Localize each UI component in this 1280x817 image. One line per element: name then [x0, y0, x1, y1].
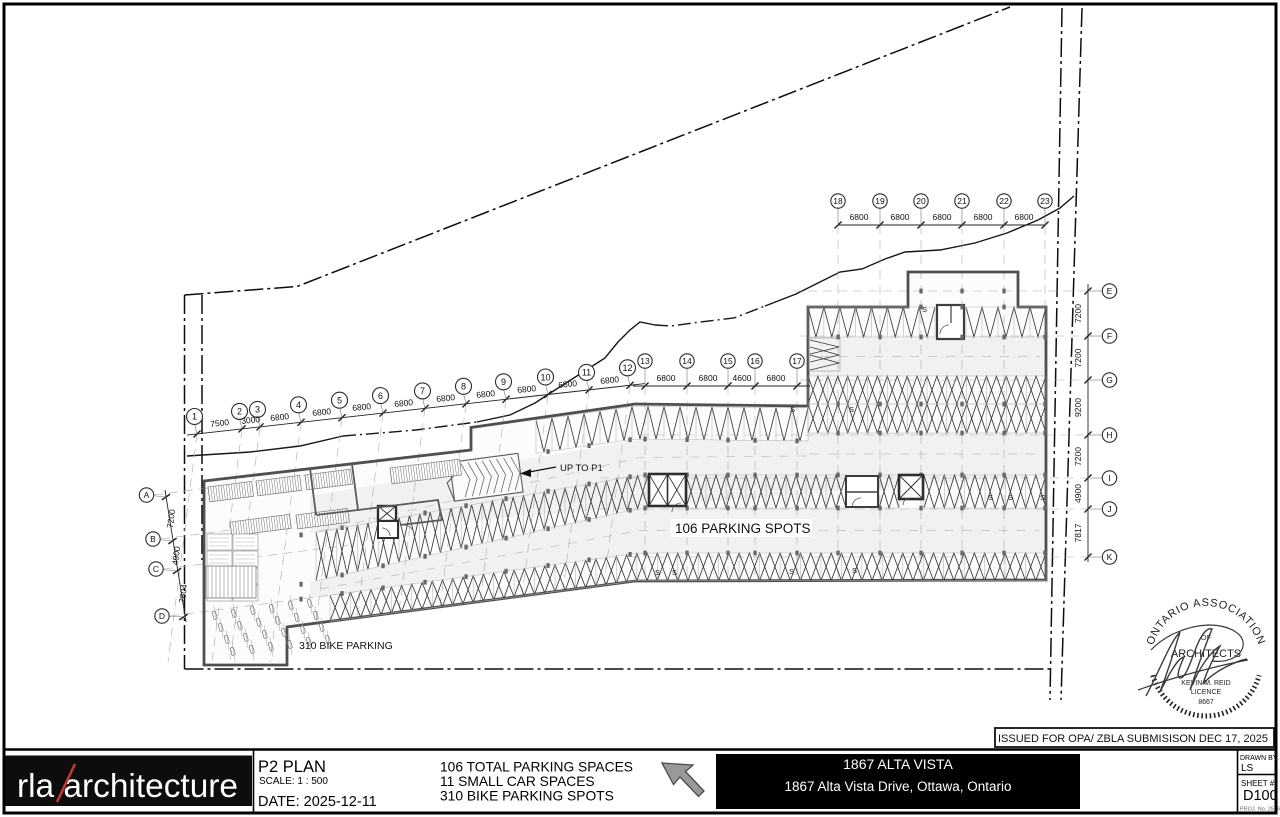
svg-text:6800: 6800: [657, 373, 676, 383]
svg-text:7200: 7200: [1073, 447, 1083, 466]
svg-text:6800: 6800: [312, 406, 332, 418]
svg-text:7500: 7500: [210, 417, 230, 429]
svg-text:6800: 6800: [1015, 212, 1034, 222]
svg-text:6800: 6800: [974, 212, 993, 222]
svg-text:SHEET #: SHEET #: [1241, 779, 1275, 788]
svg-text:4600: 4600: [733, 373, 752, 383]
svg-text:6800: 6800: [600, 374, 620, 386]
svg-text:1867 ALTA VISTA: 1867 ALTA VISTA: [843, 756, 953, 772]
svg-text:11: 11: [582, 368, 591, 378]
svg-text:21: 21: [957, 196, 967, 206]
svg-text:H: H: [1106, 430, 1112, 440]
svg-text:8: 8: [461, 382, 466, 392]
svg-text:7200: 7200: [1073, 304, 1083, 323]
svg-text:S: S: [852, 566, 857, 575]
svg-text:106 TOTAL PARKING SPACES: 106 TOTAL PARKING SPACES: [440, 760, 633, 775]
svg-text:22: 22: [999, 196, 1009, 206]
svg-text:7817: 7817: [1073, 523, 1083, 542]
svg-text:12: 12: [622, 363, 632, 373]
svg-text:rla architecture: rla architecture: [17, 767, 238, 804]
svg-text:DRAWN BY: DRAWN BY: [1240, 755, 1278, 762]
svg-text:6800: 6800: [394, 397, 414, 409]
svg-text:6800: 6800: [767, 373, 786, 383]
svg-text:J: J: [1107, 504, 1111, 514]
svg-text:6: 6: [378, 391, 383, 401]
svg-text:6800: 6800: [476, 388, 496, 400]
svg-text:S: S: [790, 405, 795, 414]
svg-text:9200: 9200: [1073, 398, 1083, 417]
svg-text:18: 18: [833, 196, 843, 206]
svg-text:F: F: [1107, 331, 1112, 341]
svg-text:UP TO P1: UP TO P1: [560, 463, 603, 474]
svg-text:3000: 3000: [241, 414, 261, 426]
svg-text:S: S: [655, 568, 660, 577]
svg-text:D: D: [159, 611, 165, 621]
svg-text:6800: 6800: [270, 411, 290, 423]
svg-text:LS: LS: [1241, 763, 1254, 774]
svg-text:6800: 6800: [352, 401, 372, 413]
svg-text:13: 13: [640, 356, 650, 366]
svg-text:S: S: [1040, 493, 1045, 502]
svg-text:S: S: [922, 305, 927, 314]
svg-text:S: S: [988, 493, 993, 502]
svg-text:E: E: [1107, 286, 1113, 296]
svg-text:4900: 4900: [1073, 484, 1083, 503]
svg-text:S: S: [789, 567, 794, 576]
svg-text:DATE: 2025-12-11: DATE: 2025-12-11: [258, 794, 377, 810]
svg-text:19: 19: [875, 196, 885, 206]
svg-text:1867 Alta Vista Drive, Ottawa,: 1867 Alta Vista Drive, Ottawa, Ontario: [784, 779, 1011, 794]
svg-text:6800: 6800: [850, 212, 869, 222]
svg-text:6800: 6800: [517, 383, 537, 395]
svg-text:11 SMALL CAR SPACES: 11 SMALL CAR SPACES: [440, 774, 595, 789]
svg-text:G: G: [1106, 375, 1113, 385]
svg-text:D100: D100: [1243, 788, 1278, 804]
svg-text:10: 10: [540, 372, 550, 382]
svg-text:I: I: [1108, 473, 1110, 483]
svg-text:DEC 17, 2025: DEC 17, 2025: [1199, 733, 1268, 745]
svg-text:1: 1: [192, 412, 197, 422]
svg-text:15: 15: [723, 356, 733, 366]
svg-text:6800: 6800: [436, 392, 456, 404]
svg-text:B: B: [150, 534, 156, 544]
svg-text:5: 5: [337, 395, 342, 405]
svg-text:LICENCE: LICENCE: [1191, 689, 1222, 696]
svg-text:ISSUED FOR OPA/ ZBLA SUBMISISO: ISSUED FOR OPA/ ZBLA SUBMISISON: [998, 733, 1196, 745]
svg-text:310 BIKE PARKING: 310 BIKE PARKING: [299, 640, 393, 652]
svg-text:A: A: [144, 490, 150, 500]
svg-text:14: 14: [682, 356, 692, 366]
svg-text:8667: 8667: [1198, 699, 1214, 706]
svg-text:7: 7: [420, 386, 425, 396]
svg-text:20: 20: [916, 196, 926, 206]
svg-text:16: 16: [750, 356, 760, 366]
svg-text:6800: 6800: [558, 378, 578, 390]
svg-text:C: C: [153, 564, 159, 574]
svg-text:P2 PLAN: P2 PLAN: [258, 758, 326, 776]
svg-text:106 PARKING SPOTS: 106 PARKING SPOTS: [675, 521, 811, 536]
svg-text:6800: 6800: [891, 212, 910, 222]
svg-text:SCALE: 1 : 500: SCALE: 1 : 500: [259, 776, 328, 787]
svg-text:4: 4: [296, 400, 301, 410]
svg-text:310 BIKE PARKING SPOTS: 310 BIKE PARKING SPOTS: [440, 789, 614, 804]
svg-text:7200: 7200: [1073, 348, 1083, 367]
svg-text:9: 9: [501, 377, 506, 387]
svg-text:K: K: [1107, 552, 1113, 562]
svg-text:S: S: [672, 568, 677, 577]
svg-text:6800: 6800: [699, 373, 718, 383]
svg-text:S: S: [849, 405, 854, 414]
svg-text:23: 23: [1040, 196, 1050, 206]
svg-text:S: S: [1008, 493, 1013, 502]
svg-text:6800: 6800: [933, 212, 952, 222]
svg-text:17: 17: [792, 356, 802, 366]
